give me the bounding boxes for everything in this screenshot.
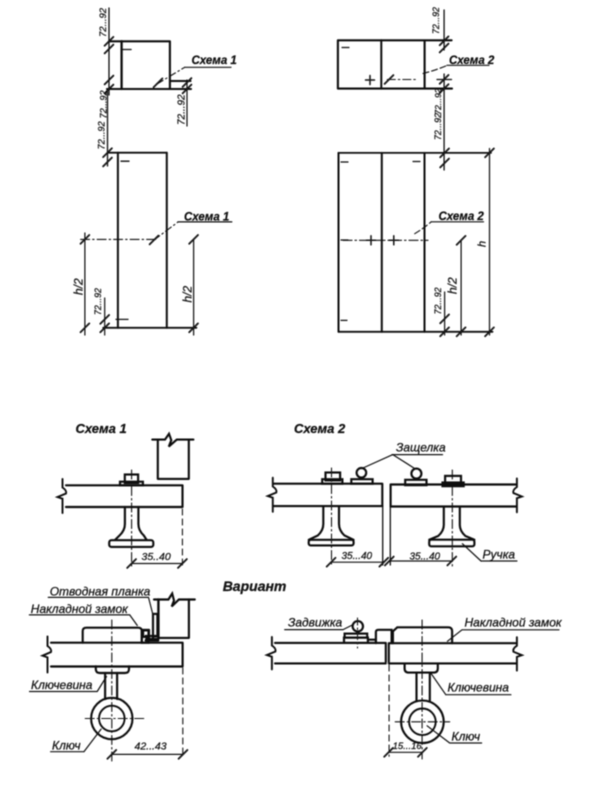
svg-text:35...40: 35...40 bbox=[410, 551, 441, 562]
svg-text:Ручка: Ручка bbox=[483, 548, 516, 562]
svg-text:72...92: 72...92 bbox=[433, 113, 443, 140]
svg-text:h/2: h/2 bbox=[181, 285, 195, 302]
svg-text:15...16: 15...16 bbox=[393, 741, 423, 752]
svg-text:Схема 1: Схема 1 bbox=[192, 55, 237, 67]
svg-text:Задвижка: Задвижка bbox=[288, 616, 343, 630]
svg-text:h: h bbox=[477, 241, 489, 247]
svg-text:Схема 2: Схема 2 bbox=[449, 55, 495, 67]
svg-text:42...43: 42...43 bbox=[135, 741, 167, 753]
svg-text:72...92: 72...92 bbox=[431, 7, 441, 34]
svg-text:Накладной замок: Накладной замок bbox=[31, 602, 129, 616]
svg-text:35..40: 35..40 bbox=[142, 551, 171, 563]
svg-text:Схема 2: Схема 2 bbox=[294, 421, 346, 436]
svg-text:Схема 1: Схема 1 bbox=[184, 212, 229, 224]
svg-text:Накладной замок: Накладной замок bbox=[465, 616, 563, 630]
svg-text:Схема 1: Схема 1 bbox=[76, 421, 127, 436]
svg-text:Ключ: Ключ bbox=[452, 730, 481, 744]
svg-text:h/2: h/2 bbox=[72, 278, 86, 295]
svg-text:72...92: 72...92 bbox=[177, 94, 188, 125]
svg-text:72...92: 72...92 bbox=[93, 288, 103, 315]
svg-text:Схема 2: Схема 2 bbox=[439, 211, 485, 223]
svg-text:Ключ: Ключ bbox=[52, 739, 81, 753]
svg-text:72...92: 72...92 bbox=[97, 121, 107, 149]
svg-text:Вариант: Вариант bbox=[223, 578, 287, 594]
svg-text:72...92: 72...92 bbox=[98, 7, 109, 37]
svg-text:35...40: 35...40 bbox=[342, 551, 373, 562]
svg-text:Отводная планка: Отводная планка bbox=[50, 585, 151, 599]
svg-text:Защелка: Защелка bbox=[396, 441, 446, 455]
svg-text:Ключевина: Ключевина bbox=[448, 681, 510, 695]
svg-text:Ключевина: Ключевина bbox=[31, 678, 93, 692]
svg-text:72...92: 72...92 bbox=[433, 287, 443, 314]
svg-text:h/2: h/2 bbox=[446, 277, 460, 294]
svg-text:72...92: 72...92 bbox=[433, 88, 443, 115]
